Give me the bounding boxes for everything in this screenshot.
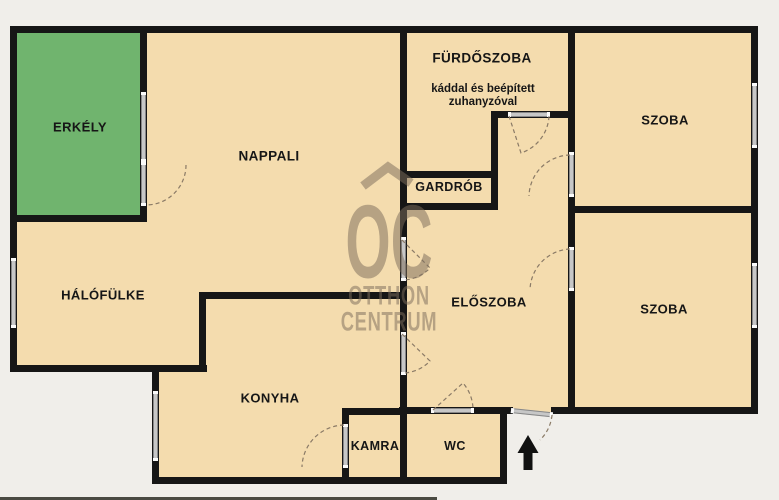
arc-furdoszoba — [509, 116, 549, 153]
note-line-1: káddal és beépített — [431, 83, 535, 95]
room-label-erkely: ERKÉLY — [53, 120, 107, 135]
room-label-kamra: KAMRA — [351, 439, 400, 453]
floorplan-canvas: OC OTTHON CENTRUM ERKÉLY NAPPALI FÜRDŐSZ… — [0, 0, 779, 500]
room-note-furdoszoba: káddal és beépített zuhanyzóval — [431, 83, 535, 109]
room-label-gardrob: GARDRÓB — [415, 180, 482, 194]
room-label-halofulke: HÁLÓFÜLKE — [61, 288, 145, 303]
room-label-nappali: NAPPALI — [238, 149, 299, 164]
note-line-2: zuhanyzóval — [449, 96, 517, 108]
room-label-eloszoba: ELŐSZOBA — [451, 295, 526, 310]
entrance-arrow-icon — [518, 435, 539, 470]
room-label-szoba-also: SZOBA — [640, 302, 688, 317]
arc-wc — [433, 383, 473, 410]
watermark-centrum-text: CENTRUM — [341, 307, 438, 338]
arc-szoba-also — [530, 249, 570, 290]
arc-kamra — [302, 425, 344, 467]
room-label-szoba-felso: SZOBA — [641, 113, 689, 128]
room-label-furdoszoba: FÜRDŐSZOBA — [432, 51, 531, 66]
room-label-wc: WC — [444, 439, 466, 453]
arc-szoba-felso — [529, 155, 570, 196]
arc-konyha — [402, 334, 430, 373]
arc-entrance — [540, 415, 552, 440]
room-label-konyha: KONYHA — [241, 391, 300, 406]
arc-erkely — [146, 165, 186, 205]
